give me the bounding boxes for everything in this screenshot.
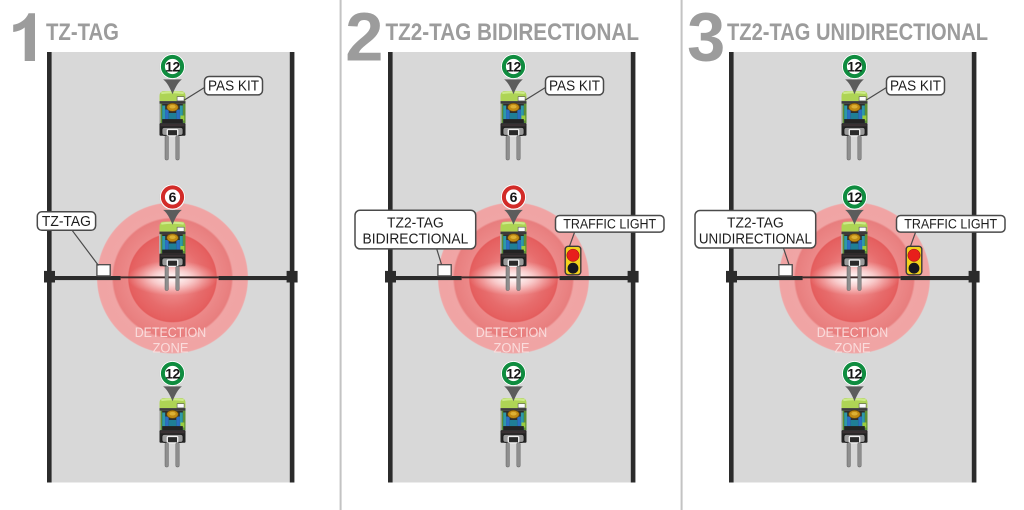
svg-text:TZ2-TAG: TZ2-TAG [727, 216, 784, 232]
svg-text:TZ2-TAG: TZ2-TAG [387, 215, 444, 231]
svg-text:TZ2-TAG UNIDIRECTIONAL: TZ2-TAG UNIDIRECTIONAL [727, 19, 988, 46]
svg-text:BIDIRECTIONAL: BIDIRECTIONAL [363, 231, 469, 247]
svg-text:TZ-TAG: TZ-TAG [46, 19, 119, 46]
svg-text:3: 3 [687, 0, 725, 76]
svg-text:UNIDIRECTIONAL: UNIDIRECTIONAL [699, 231, 812, 247]
svg-text:TZ2-TAG BIDIRECTIONAL: TZ2-TAG BIDIRECTIONAL [386, 19, 640, 46]
svg-text:TZ-TAG: TZ-TAG [42, 214, 91, 230]
svg-text:2: 2 [345, 0, 383, 76]
